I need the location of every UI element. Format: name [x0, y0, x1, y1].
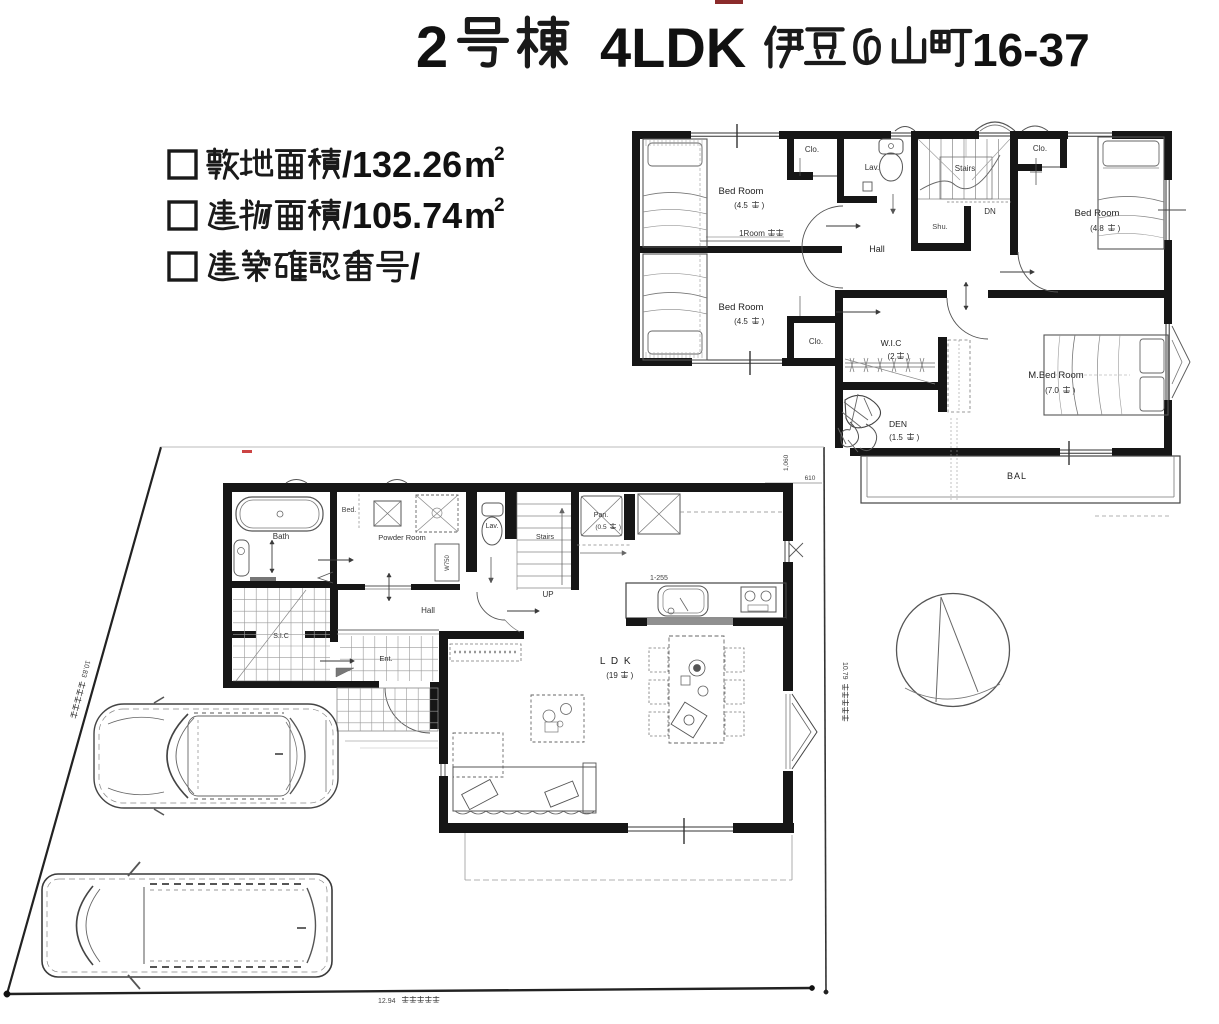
- svg-text:): ): [1118, 224, 1121, 233]
- svg-text:W750: W750: [445, 555, 451, 571]
- svg-text:12.94: 12.94: [378, 998, 396, 1005]
- svg-text:M.Bed Room: M.Bed Room: [1028, 370, 1084, 381]
- svg-text:): ): [619, 524, 621, 531]
- svg-text:Bed Room: Bed Room: [719, 186, 764, 197]
- svg-text:Lav.: Lav.: [486, 523, 499, 530]
- svg-text:Stairs: Stairs: [536, 534, 554, 541]
- svg-text:W.I.C: W.I.C: [881, 338, 902, 348]
- svg-text:Shu.: Shu.: [932, 222, 947, 231]
- svg-text:(1.5: (1.5: [889, 433, 903, 442]
- svg-text:2: 2: [494, 144, 505, 165]
- svg-text:16-37: 16-37: [972, 24, 1090, 76]
- svg-text:(7.0: (7.0: [1045, 386, 1059, 395]
- svg-text:UP: UP: [542, 590, 553, 599]
- svg-text:Powder Room: Powder Room: [378, 533, 426, 542]
- svg-text:(2: (2: [887, 352, 895, 361]
- svg-text:): ): [762, 317, 765, 326]
- svg-text:Clo.: Clo.: [1033, 144, 1047, 153]
- svg-text:DEN: DEN: [889, 419, 907, 429]
- svg-text:m: m: [464, 144, 496, 185]
- svg-text:m: m: [464, 195, 496, 236]
- svg-text:(4.5: (4.5: [734, 201, 748, 210]
- svg-text:Stairs: Stairs: [955, 164, 975, 173]
- svg-text:(4.5: (4.5: [734, 317, 748, 326]
- svg-text:2: 2: [494, 195, 505, 216]
- svg-text:L D K: L D K: [600, 656, 632, 667]
- svg-text:DN: DN: [984, 207, 996, 216]
- svg-text:10.79: 10.79: [841, 662, 848, 680]
- svg-text:4LDK: 4LDK: [600, 16, 746, 79]
- svg-text:(19: (19: [606, 671, 618, 680]
- svg-text:Bed Room: Bed Room: [719, 302, 764, 313]
- svg-text:Bath: Bath: [273, 532, 289, 541]
- svg-text:/105.74: /105.74: [342, 195, 462, 236]
- svg-text:2: 2: [416, 15, 448, 80]
- svg-text:(4.8: (4.8: [1090, 224, 1104, 233]
- svg-text:/132.26: /132.26: [342, 144, 462, 185]
- svg-text:Clo.: Clo.: [805, 145, 819, 154]
- svg-text:Ent.: Ent.: [379, 654, 392, 663]
- svg-text:Pan.: Pan.: [594, 512, 608, 519]
- svg-text:Bed Room: Bed Room: [1075, 208, 1120, 219]
- svg-text:Bed.: Bed.: [342, 507, 356, 514]
- svg-text:S.I.C: S.I.C: [273, 633, 289, 640]
- svg-text:): ): [631, 671, 634, 680]
- svg-text:Hall: Hall: [421, 606, 435, 615]
- svg-text:Lav.: Lav.: [865, 163, 880, 172]
- svg-text:1-255: 1-255: [650, 575, 668, 582]
- svg-text:/: /: [410, 246, 420, 287]
- svg-text:1Room: 1Room: [739, 229, 765, 238]
- svg-text:Hall: Hall: [869, 244, 885, 254]
- svg-text:1,060: 1,060: [783, 454, 790, 471]
- svg-text:): ): [917, 433, 920, 442]
- svg-text:Clo.: Clo.: [809, 337, 823, 346]
- svg-text:BAL: BAL: [1007, 471, 1027, 481]
- svg-text:610: 610: [805, 475, 816, 482]
- svg-text:): ): [762, 201, 765, 210]
- svg-text:(0.5: (0.5: [595, 524, 607, 531]
